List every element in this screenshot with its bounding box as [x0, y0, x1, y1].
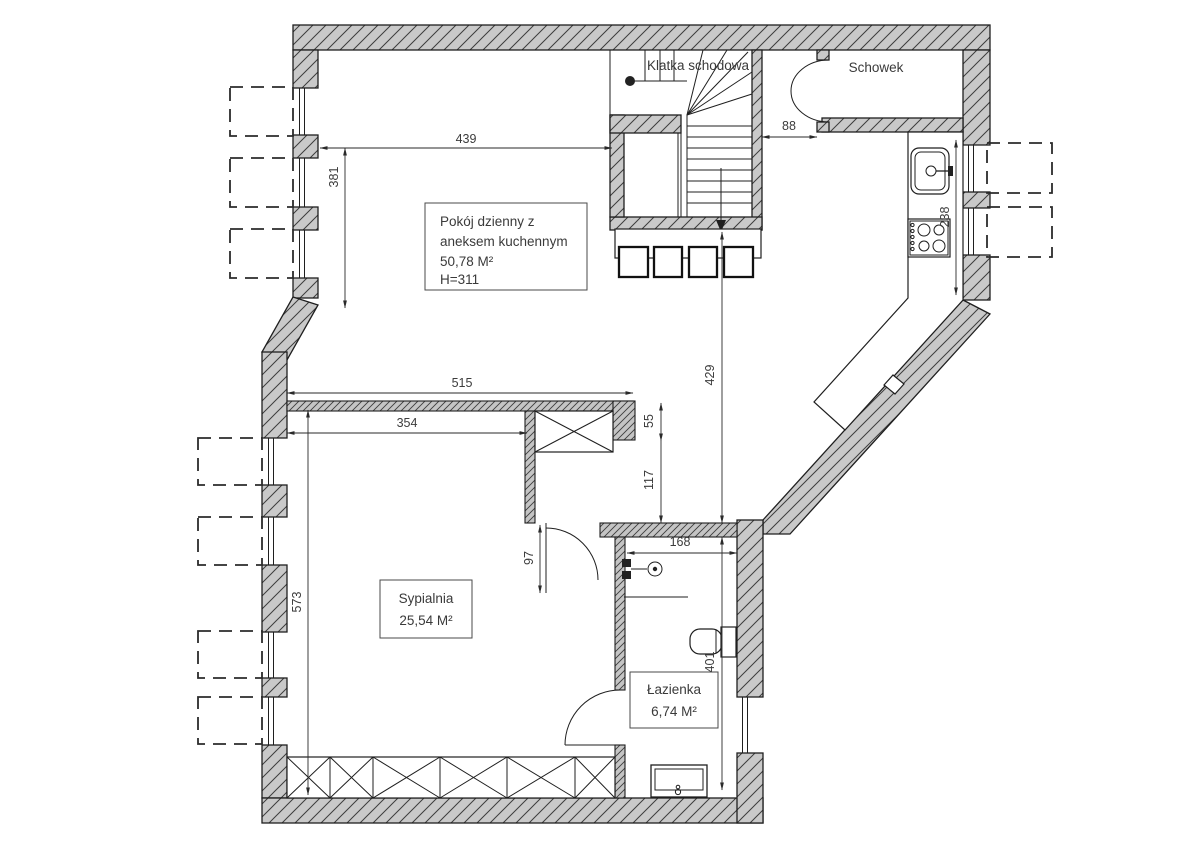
stair-shaft [624, 133, 678, 217]
wall-left-upper [293, 50, 318, 88]
wall-living-bedroom [287, 401, 633, 411]
dim-401: 401 [703, 652, 717, 673]
wall-top [293, 25, 990, 50]
svg-text:H=311: H=311 [440, 272, 479, 287]
staircase [610, 50, 752, 232]
dim-439: 439 [456, 132, 477, 146]
dim-97: 97 [522, 551, 536, 565]
wall-bathroom-right [737, 520, 763, 697]
svg-text:Sypialnia: Sypialnia [399, 591, 454, 606]
newel-post [625, 76, 635, 86]
kitchen-sink [911, 148, 953, 194]
storage-door-jamb [817, 50, 829, 60]
dim-573: 573 [290, 592, 304, 613]
interior-walls [287, 401, 737, 798]
wall-bottom [262, 798, 763, 823]
label-living-room: Pokój dzienny z aneksem kuchennym 50,78 … [425, 203, 587, 290]
label-staircase: Klatka schodowa [647, 58, 750, 73]
bathroom-door [565, 690, 620, 745]
washbasin-unit [651, 765, 707, 797]
wall-left-lower [262, 352, 287, 438]
dim-168: 168 [670, 535, 691, 549]
wall-right-upper [963, 50, 990, 145]
kitchen [814, 132, 963, 430]
bedroom-door [546, 523, 598, 593]
shower-tap [622, 559, 662, 579]
svg-text:aneksem kuchennym: aneksem kuchennym [440, 234, 568, 249]
dim-55: 55 [642, 414, 656, 428]
dim-381: 381 [327, 167, 341, 188]
svg-text:50,78 M²: 50,78 M² [440, 254, 494, 269]
stair-direction-arrow [716, 168, 726, 232]
floor-plan-drawing: 439 381 88 238 429 515 354 55 117 97 168… [0, 0, 1200, 850]
storage-wall [822, 118, 963, 132]
wall-bedroom-east [525, 411, 535, 523]
svg-text:6,74 M²: 6,74 M² [651, 704, 697, 719]
label-storage: Schowek [849, 60, 904, 75]
wardrobe [287, 757, 615, 798]
svg-text:25,54 M²: 25,54 M² [399, 613, 453, 628]
svg-text:Łazienka: Łazienka [647, 682, 702, 697]
hall-cabinets [615, 229, 761, 277]
dim-88: 88 [782, 119, 796, 133]
label-bedroom: Sypialnia 25,54 M² [380, 580, 472, 638]
label-bathroom: Łazienka 6,74 M² [630, 672, 718, 728]
duct-box [535, 411, 613, 452]
storage-door [791, 60, 829, 122]
dim-354: 354 [397, 416, 418, 430]
dim-429: 429 [703, 365, 717, 386]
dim-117: 117 [642, 470, 656, 490]
dim-515: 515 [452, 376, 473, 390]
wall-bathroom-top [600, 523, 737, 537]
wall-left-diagonal [262, 297, 318, 360]
dim-238: 238 [938, 207, 952, 228]
floor-plan-page: 439 381 88 238 429 515 354 55 117 97 168… [0, 0, 1200, 850]
svg-text:Pokój dzienny z: Pokój dzienny z [440, 214, 535, 229]
